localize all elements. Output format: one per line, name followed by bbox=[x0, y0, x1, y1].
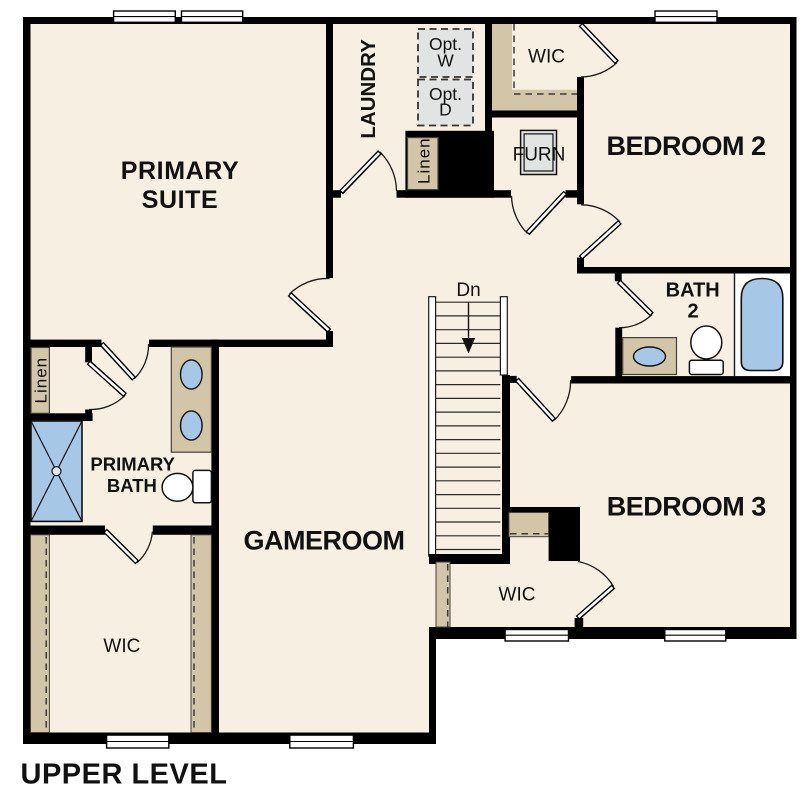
svg-text:GAMEROOM: GAMEROOM bbox=[244, 526, 405, 556]
svg-text:WIC: WIC bbox=[103, 636, 140, 657]
svg-text:W: W bbox=[437, 51, 454, 71]
svg-text:PRIMARY: PRIMARY bbox=[121, 157, 240, 185]
svg-text:WIC: WIC bbox=[528, 47, 565, 68]
svg-text:Dn: Dn bbox=[456, 280, 480, 301]
svg-text:UPPER LEVEL: UPPER LEVEL bbox=[21, 759, 228, 791]
svg-text:SUITE: SUITE bbox=[142, 186, 219, 214]
svg-text:D: D bbox=[439, 100, 452, 120]
svg-text:Linen: Linen bbox=[32, 357, 51, 404]
svg-text:BATH: BATH bbox=[666, 280, 720, 302]
svg-text:WIC: WIC bbox=[499, 585, 536, 606]
svg-text:BATH: BATH bbox=[107, 475, 157, 496]
svg-text:Linen: Linen bbox=[414, 137, 433, 184]
svg-text:BEDROOM 3: BEDROOM 3 bbox=[607, 491, 767, 521]
svg-text:LAUNDRY: LAUNDRY bbox=[357, 39, 380, 139]
svg-text:BEDROOM 2: BEDROOM 2 bbox=[606, 131, 765, 161]
svg-text:FURN: FURN bbox=[513, 145, 566, 166]
svg-text:2: 2 bbox=[687, 300, 698, 322]
svg-text:PRIMARY: PRIMARY bbox=[90, 453, 175, 474]
